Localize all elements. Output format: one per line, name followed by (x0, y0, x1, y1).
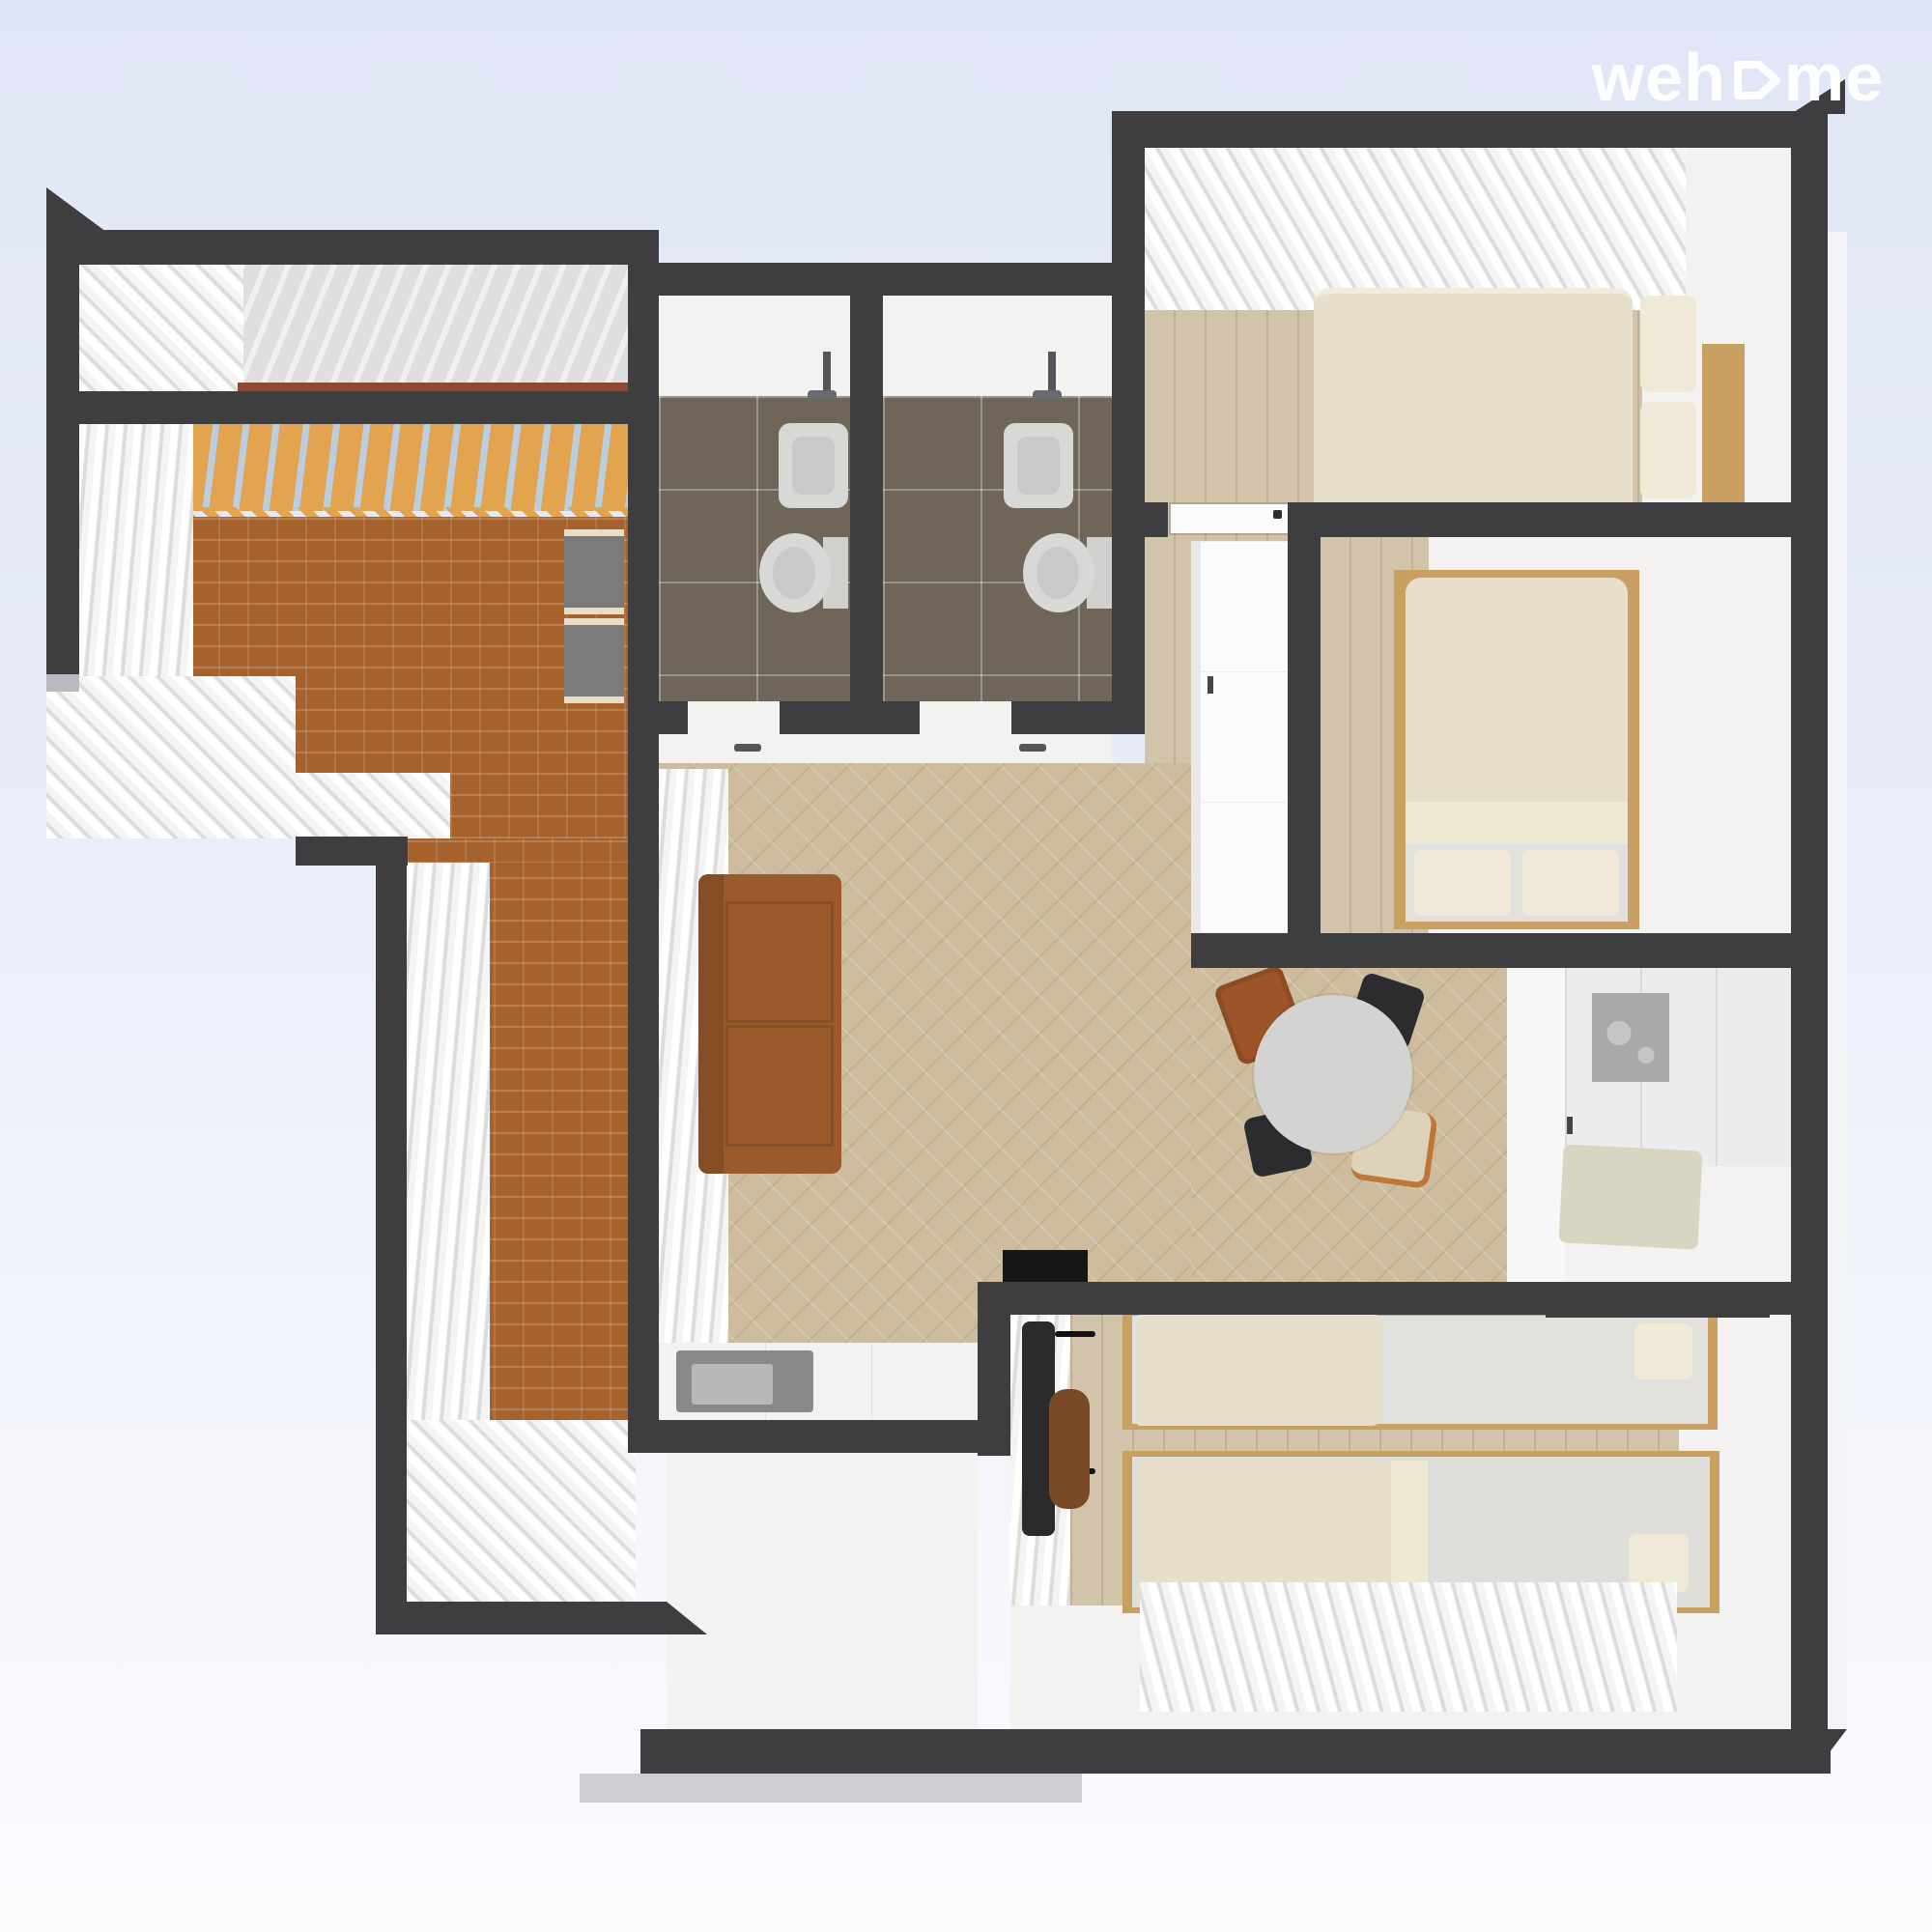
wall-terrace-left-cap (46, 674, 79, 692)
bedroom-2-pillow-b (1522, 850, 1619, 916)
terrace-bench-2 (564, 618, 624, 703)
bathroom-2-upper-floor (883, 296, 1112, 396)
bathroom-1-bidet-bowl (792, 437, 835, 495)
bedroom-3-curtain-bottom (1140, 1582, 1677, 1712)
bedroom-1-pillow-b (1640, 402, 1696, 498)
wall-bedroom-2-left (1288, 502, 1321, 968)
coat-stand-bag (1049, 1389, 1090, 1509)
bathroom-1-toilet-bowl (773, 547, 815, 599)
wall-kitchen-bottom (628, 1420, 978, 1453)
terrace-awning (189, 424, 628, 511)
bedroom-2-bed-duvet (1406, 578, 1628, 837)
kitchen-sink-basin (692, 1364, 773, 1405)
wall-bedroom-3-right (1791, 1314, 1828, 1733)
doormat (1003, 1250, 1088, 1282)
wall-bathrooms-middle (850, 263, 883, 734)
bedroom-1-wardrobe-door (1702, 344, 1745, 502)
storage-balcony-curtain (79, 265, 243, 391)
wall-bottom-outer (640, 1729, 1831, 1774)
entry-door-leaf (1171, 504, 1289, 533)
bedroom-1-bed-duvet (1314, 288, 1633, 508)
tv-alcove-artwork (1592, 993, 1669, 1082)
wall-corridor-step (296, 837, 408, 866)
sofa-backrest (698, 874, 724, 1174)
hall-closet-handle-icon (1207, 676, 1213, 694)
wall-left-inner (628, 230, 659, 1433)
bedroom-1-curtains (1145, 148, 1686, 310)
side-corridor-curtain-bottom (407, 1420, 636, 1602)
wall-terrace-left (46, 230, 79, 679)
bedroom-1-pillow-a (1640, 296, 1696, 392)
wall-bedroom-1-right (1791, 111, 1828, 538)
wall-bathrooms-top (628, 263, 1145, 296)
wall-bedroom-2-bottom (1191, 933, 1828, 968)
bedroom-3-bed-a-duvet (1138, 1314, 1381, 1426)
bedroom-3-bed-a-pillow (1634, 1323, 1692, 1379)
wall-terrace-divider (79, 391, 628, 424)
wall-corridor-bottom (376, 1602, 667, 1634)
terrace-corner-curtain (46, 676, 296, 838)
wall-corridor-left (376, 863, 407, 1634)
hall-closet-side (1191, 541, 1201, 933)
wall-bedroom-3-top (978, 1282, 1828, 1315)
tv-alcove-cabinet (1558, 1144, 1702, 1249)
wall-bottom-shadow (580, 1774, 1082, 1803)
coat-hook-a-icon (1055, 1331, 1095, 1337)
bathroom-1-shower-head-icon (808, 390, 837, 400)
bathroom-2-door-opening (920, 701, 1011, 734)
hall-terrace-connector-floor (407, 838, 628, 864)
wehome-logo-text-left: weh (1592, 39, 1726, 116)
floorplan-render: weh me (0, 0, 1932, 1932)
sofa (698, 874, 841, 1174)
hall-closet (1201, 541, 1288, 933)
alcove-left-wall-face (1507, 968, 1565, 1287)
bathroom-1-door-opening (688, 701, 780, 734)
sofa-cushion-1 (725, 901, 834, 1023)
sofa-cushion-2 (725, 1025, 834, 1147)
wall-bedroom-1-bottom-b (1294, 502, 1826, 537)
bathroom-2-toilet-bowl (1037, 547, 1079, 599)
wall-terrace-top (46, 230, 659, 265)
wall-alcove-right (1791, 968, 1828, 1296)
tv-alcove-handle-icon (1567, 1117, 1573, 1134)
bedroom-2-bed-blanket (1406, 802, 1628, 844)
dining-table (1254, 995, 1412, 1153)
vanity-faucet-1-icon (734, 744, 761, 752)
home-pentagon-icon (1729, 48, 1781, 106)
wall-bedroom-2-right (1791, 502, 1828, 968)
curtain-rail (238, 383, 628, 391)
wall-bedroom-1-left (1112, 114, 1145, 734)
wall-cap-top-left (46, 187, 106, 232)
bathroom-2-shower-head-icon (1033, 390, 1062, 400)
outer-wall-face-right (1828, 232, 1847, 1729)
kitchen-balcony-floor (667, 1453, 978, 1729)
wehome-logo: weh me (1592, 39, 1884, 116)
wall-bedroom-1-top (1112, 111, 1826, 148)
terrace-bench-1 (564, 529, 624, 614)
entry-door-handle-icon (1273, 510, 1282, 519)
bathroom-1-upper-floor (659, 296, 850, 396)
bathroom-2-bidet-bowl (1017, 437, 1060, 495)
bedroom-2-pillow-a (1414, 850, 1511, 916)
wehome-logo-text-right: me (1784, 39, 1884, 116)
vanity-faucet-2-icon (1019, 744, 1046, 752)
wall-bedroom-1-bottom-a (1112, 502, 1168, 537)
